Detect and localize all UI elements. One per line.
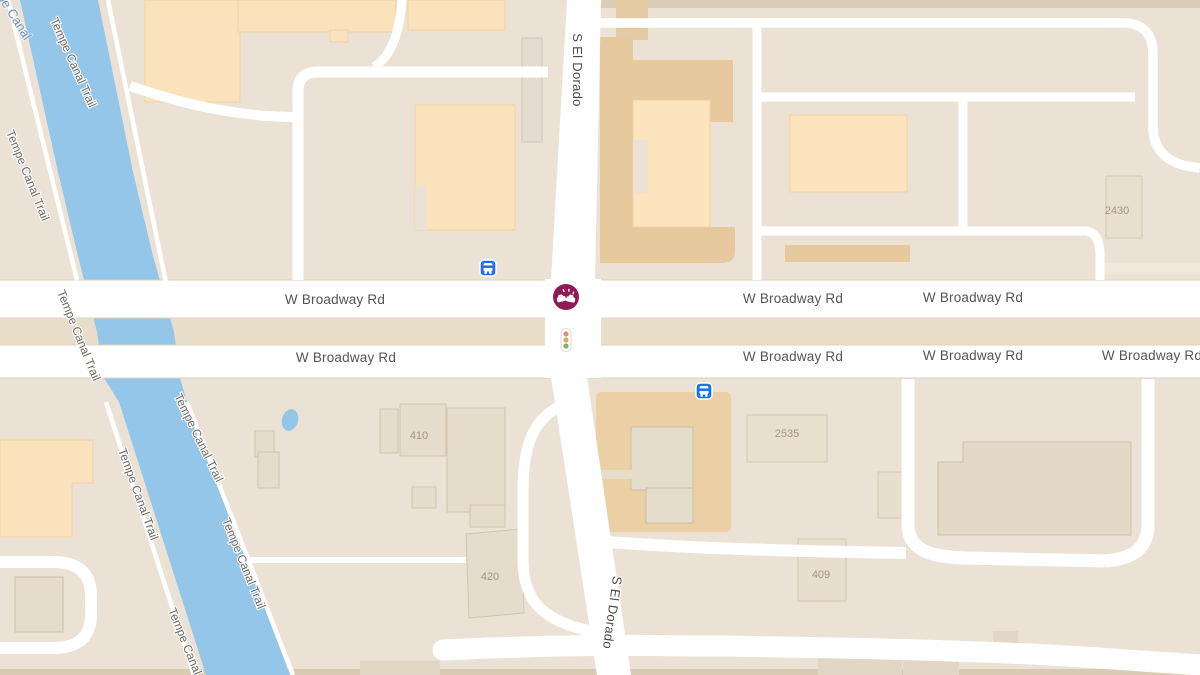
road-label-broadway: W Broadway Rd (743, 349, 843, 364)
building (447, 408, 505, 512)
building (330, 30, 348, 42)
building (785, 245, 910, 262)
building (878, 472, 904, 518)
road-label-broadway: W Broadway Rd (296, 350, 396, 365)
building-notch (633, 140, 648, 193)
building (522, 38, 542, 142)
building-number: 409 (812, 569, 830, 581)
traffic-signal-icon[interactable] (561, 329, 571, 352)
map-svg: W Broadway Rd W Broadway Rd W Broadway R… (0, 0, 1200, 675)
building (600, 470, 632, 479)
map-canvas[interactable]: W Broadway Rd W Broadway Rd W Broadway R… (0, 0, 1200, 675)
building (646, 488, 693, 523)
block-edge-strip (596, 0, 1200, 8)
road-label-broadway: W Broadway Rd (285, 292, 385, 307)
road-label-el-dorado: S El Dorado (570, 33, 585, 106)
building (415, 105, 515, 230)
building (258, 452, 279, 488)
building (412, 487, 436, 508)
bus-stop-icon[interactable] (480, 260, 496, 276)
building (380, 409, 398, 453)
building (790, 115, 907, 192)
building (238, 0, 396, 32)
building-number: 420 (481, 571, 499, 583)
building (360, 661, 440, 675)
building-number: 2535 (775, 428, 799, 440)
building (145, 0, 240, 102)
building-notch (415, 185, 427, 230)
road-label-broadway: W Broadway Rd (743, 291, 843, 306)
road-label-broadway: W Broadway Rd (923, 290, 1023, 305)
car-crash-incident-icon[interactable] (553, 284, 579, 310)
building (938, 442, 1131, 535)
road-label-broadway: W Broadway Rd (923, 348, 1023, 363)
building (408, 0, 505, 30)
building (15, 577, 63, 632)
building-number: 2430 (1105, 205, 1129, 217)
road-label-broadway: W Broadway Rd (1102, 348, 1200, 363)
sidewalk-strip (1096, 263, 1200, 274)
bus-stop-icon[interactable] (696, 383, 712, 399)
building (631, 427, 693, 490)
building-number: 410 (410, 430, 428, 442)
building (470, 505, 505, 527)
